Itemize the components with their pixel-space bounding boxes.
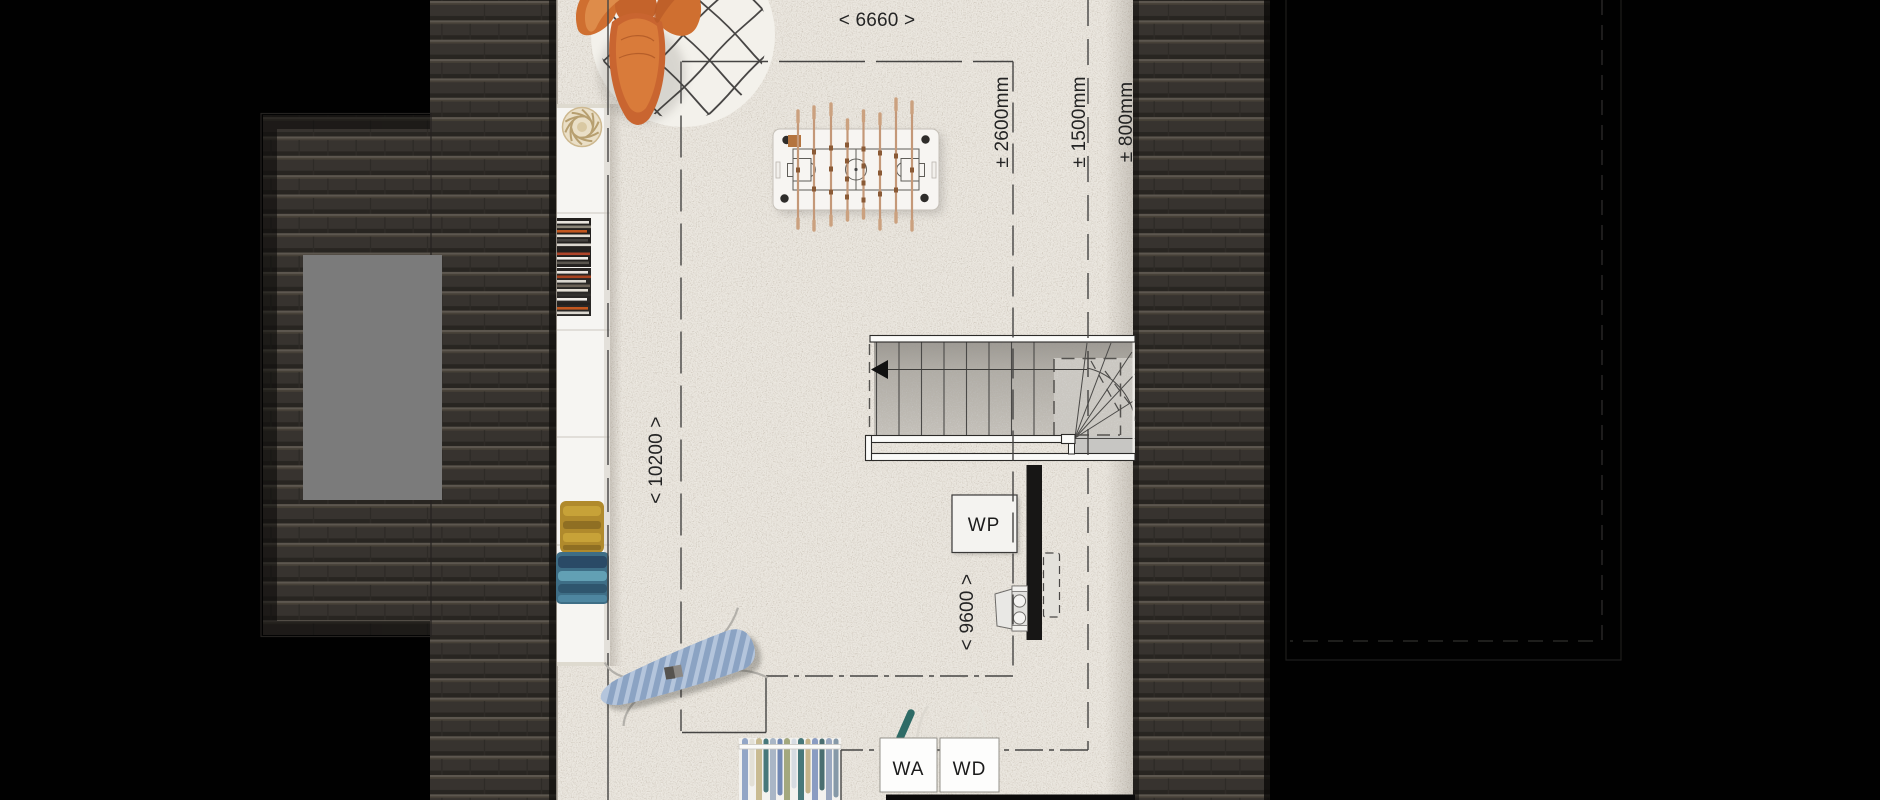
svg-text:± 2600mm: ± 2600mm — [992, 76, 1013, 167]
svg-text:± 800mm: ± 800mm — [1116, 82, 1137, 162]
svg-text:< 10200 >: < 10200 > — [646, 416, 667, 503]
svg-text:< 6660 >: < 6660 > — [839, 10, 916, 31]
svg-text:WP: WP — [968, 515, 1001, 536]
svg-text:WA: WA — [893, 759, 925, 780]
svg-text:< 9600 >: < 9600 > — [957, 574, 978, 651]
svg-text:± 1500mm: ± 1500mm — [1069, 76, 1090, 167]
svg-text:WD: WD — [953, 759, 987, 780]
